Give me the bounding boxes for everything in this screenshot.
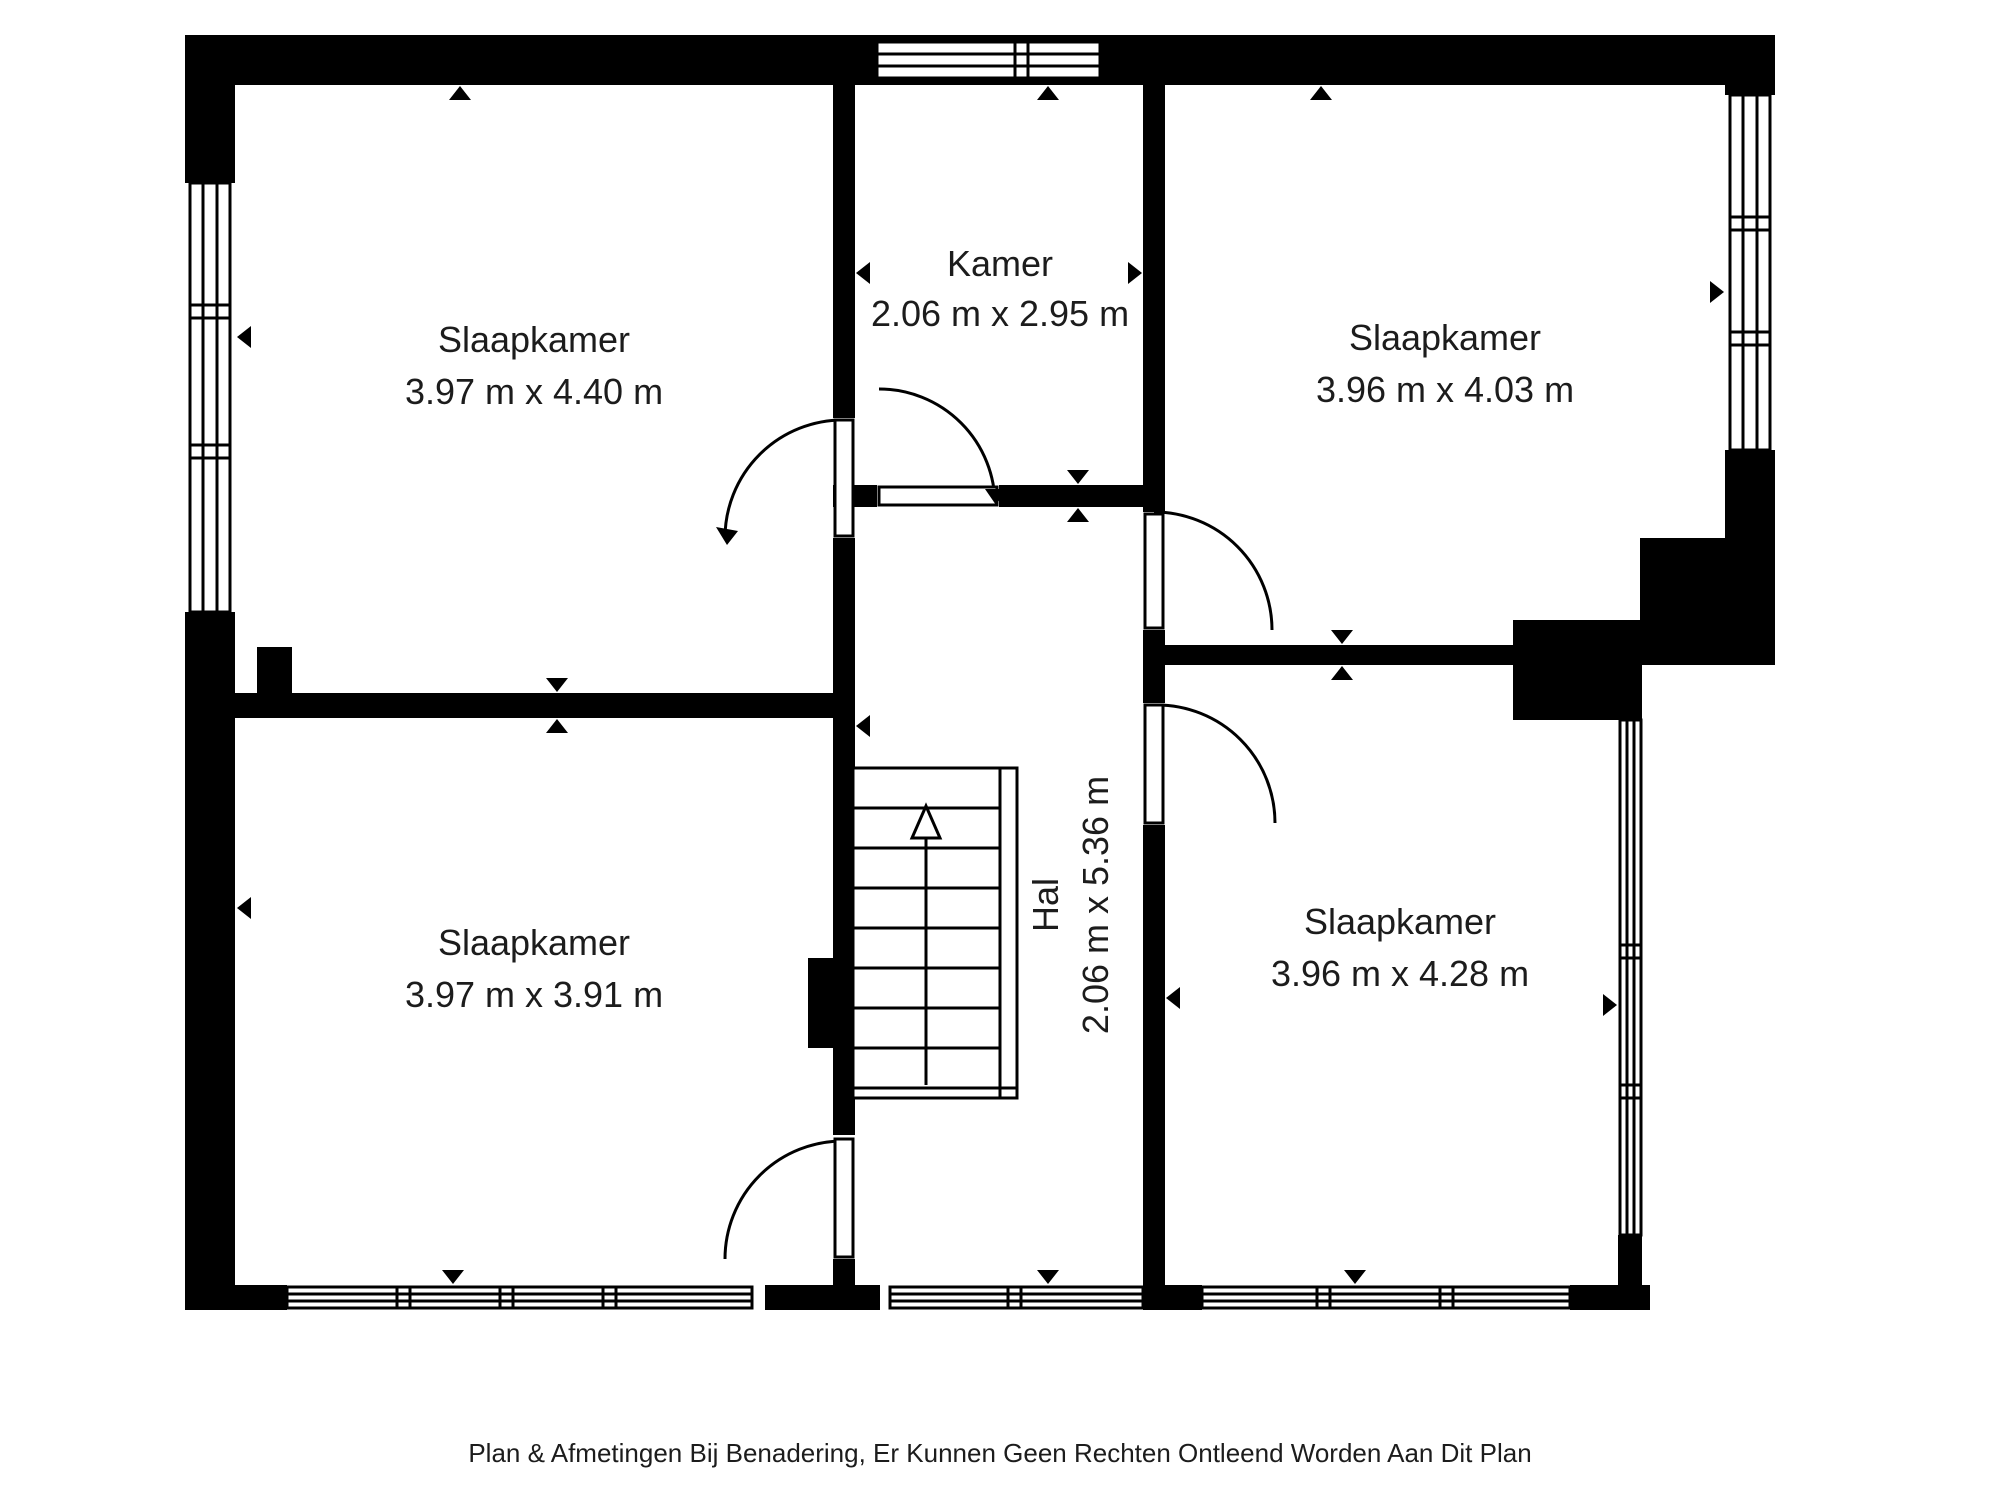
window-icon — [877, 42, 1100, 78]
door-swing-icon — [1145, 705, 1275, 823]
wall-notch — [257, 647, 292, 693]
exterior-walls — [185, 35, 1775, 1310]
wall-right-upper-a — [1725, 35, 1775, 95]
door-swing-icon — [716, 420, 853, 545]
door-swing-icon — [1145, 512, 1272, 630]
wall-right-lower — [1618, 1235, 1642, 1310]
floorplan-drawing: Slaapkamer 3.97 m x 4.40 m Kamer 2.06 m … — [0, 0, 2000, 1500]
room-label-name: Kamer — [947, 243, 1053, 284]
wall-left-upper — [185, 35, 235, 183]
room-label-dims: 3.96 m x 4.28 m — [1271, 953, 1529, 994]
door-swing-icon — [879, 389, 1007, 505]
wall-center-left-c — [833, 1259, 855, 1310]
window-icon — [1730, 95, 1770, 450]
window-icon — [1620, 720, 1641, 1235]
door-swing-arrow-icon — [716, 527, 738, 545]
wall-divider-right-rooms — [1165, 645, 1513, 665]
room-label-name: Slaapkamer — [438, 922, 630, 963]
wall-kamer-bottom-b — [999, 485, 1143, 507]
dimension-arrow-icon — [1344, 1270, 1366, 1284]
door-swing-icon — [725, 1139, 853, 1259]
room-label-dims: 3.97 m x 3.91 m — [405, 974, 663, 1015]
wall-bottom-a — [185, 1285, 287, 1310]
floorplan-page: Slaapkamer 3.97 m x 4.40 m Kamer 2.06 m … — [0, 0, 2000, 1500]
wall-step-block-b — [1513, 620, 1642, 720]
dimension-arrow-icon — [442, 1270, 464, 1284]
dimension-arrow-icon — [1067, 508, 1089, 522]
dimension-arrow-icon — [1166, 987, 1180, 1009]
dimension-arrow-icon — [1067, 470, 1089, 484]
wall-bottom-b — [765, 1285, 880, 1310]
dimension-arrow-icon — [237, 326, 251, 348]
room-label-name: Slaapkamer — [1304, 901, 1496, 942]
dimension-arrow-icon — [1128, 262, 1142, 284]
dimension-arrow-icon — [546, 719, 568, 733]
dimension-arrow-icon — [1037, 1270, 1059, 1284]
dimension-arrow-icon — [449, 86, 471, 100]
chimney-block — [808, 958, 855, 1048]
dimension-arrow-icon — [237, 897, 251, 919]
room-label-name: Hal — [1025, 878, 1066, 932]
room-label-dims: 2.06 m x 2.95 m — [871, 293, 1129, 334]
window-icon — [190, 183, 230, 612]
wall-center-left-a — [833, 85, 855, 418]
room-label-dims: 3.96 m x 4.03 m — [1316, 369, 1574, 410]
wall-left-lower — [185, 612, 235, 1310]
window-icon — [1202, 1287, 1570, 1308]
dimension-arrow-icon — [1037, 86, 1059, 100]
dimension-arrow-icon — [1331, 666, 1353, 680]
room-label-dims: 2.06 m x 5.36 m — [1075, 776, 1116, 1034]
room-label-name: Slaapkamer — [438, 319, 630, 360]
wall-center-right-c — [1143, 825, 1165, 1310]
wall-divider-left-rooms — [235, 693, 833, 718]
disclaimer-caption: Plan & Afmetingen Bij Benadering, Er Kun… — [468, 1438, 1531, 1468]
dimension-arrow-icon — [1710, 281, 1724, 303]
dimension-arrow-icon — [1331, 630, 1353, 644]
interior-walls — [235, 85, 1513, 1310]
dimension-arrow-icon — [856, 715, 870, 737]
dimension-arrow-icon — [856, 262, 870, 284]
wall-step-block-a — [1640, 538, 1775, 665]
window-icon — [890, 1287, 1143, 1308]
wall-center-right-b — [1143, 630, 1165, 703]
dimension-arrow-icon — [546, 678, 568, 692]
room-label-name: Slaapkamer — [1349, 317, 1541, 358]
room-label-dims: 3.97 m x 4.40 m — [405, 371, 663, 412]
stairs-icon — [853, 768, 1017, 1098]
wall-center-right-a — [1143, 85, 1165, 512]
dimension-arrow-icon — [1603, 994, 1617, 1016]
window-icon — [287, 1287, 752, 1308]
dimension-arrow-icon — [1310, 86, 1332, 100]
